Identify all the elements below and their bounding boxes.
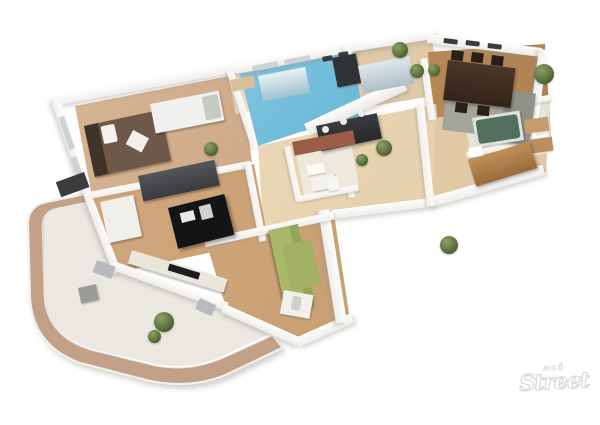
plant-dining-left: [428, 64, 440, 76]
bar-stool-1: [322, 126, 329, 133]
plant-dining-corner: [534, 64, 554, 84]
bathtub-basin: [475, 114, 520, 144]
daybed-cushion: [202, 94, 222, 121]
plant-bedroom: [204, 142, 218, 156]
floor-plan-render: 3D isometric cutaway render of a furnish…: [0, 0, 600, 425]
table-lamp: [291, 296, 302, 311]
plant-balcony-1: [154, 312, 174, 332]
dining-chair-1: [451, 50, 464, 61]
plant-hallway-2: [356, 154, 368, 166]
bed-pillow: [100, 124, 117, 145]
plant-balcony-2: [148, 330, 161, 343]
dining-chair-4: [455, 102, 468, 113]
plant-entry-2: [410, 64, 424, 78]
plant-entry-1: [392, 42, 408, 58]
dining-chair-3: [491, 55, 504, 66]
dining-chair-5: [477, 105, 490, 116]
bar-stool-2: [340, 118, 347, 125]
dining-table: [443, 60, 515, 108]
dining-chair-2: [471, 52, 484, 63]
bed-blanket-fold: [126, 130, 149, 153]
bar-stool-3: [358, 110, 365, 117]
plant-hallway-1: [376, 140, 392, 156]
plant-outside-corner: [440, 236, 458, 254]
desk-monitor: [199, 204, 214, 220]
inner-bathroom-toilet: [326, 176, 340, 192]
desk-papers: [180, 210, 196, 223]
watermark-main-text: Street: [514, 367, 595, 397]
lounge-side-table: [280, 290, 314, 319]
watermark: мой Street: [513, 360, 595, 397]
